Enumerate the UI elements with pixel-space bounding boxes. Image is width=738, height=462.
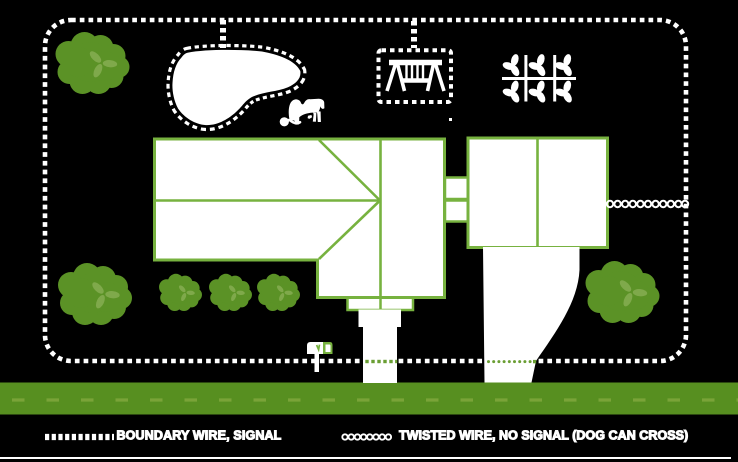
- svg-text:BOUNDARY WIRE, SIGNAL: BOUNDARY WIRE, SIGNAL: [117, 429, 282, 443]
- svg-text:TWISTED WIRE, NO SIGNAL (DOG C: TWISTED WIRE, NO SIGNAL (DOG CAN CROSS): [399, 429, 688, 443]
